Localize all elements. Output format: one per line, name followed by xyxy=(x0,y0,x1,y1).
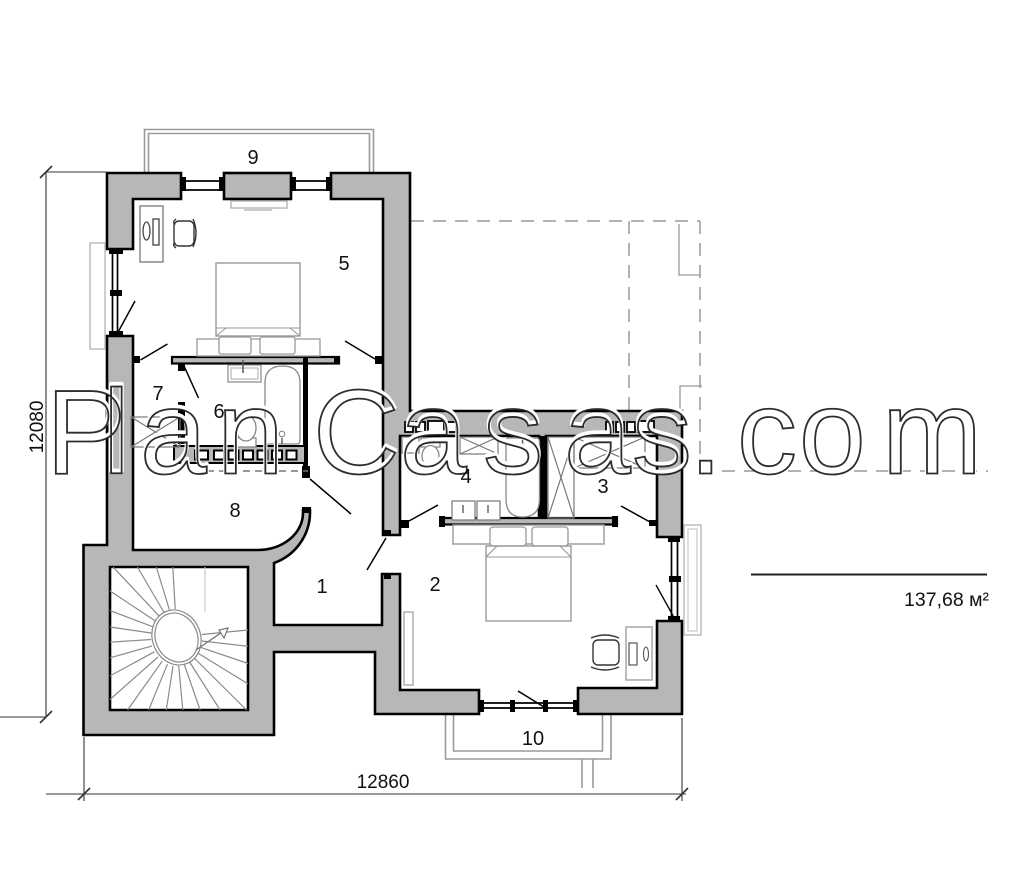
svg-text:1: 1 xyxy=(316,576,327,598)
svg-text:9: 9 xyxy=(247,147,258,169)
svg-text:2: 2 xyxy=(429,574,440,596)
svg-text:10: 10 xyxy=(522,728,544,750)
svg-text:8: 8 xyxy=(229,500,240,522)
svg-text:3: 3 xyxy=(597,476,608,498)
svg-text:6: 6 xyxy=(213,401,224,423)
svg-text:5: 5 xyxy=(338,253,349,275)
svg-text:7: 7 xyxy=(152,383,163,405)
svg-text:PlanCasas.com: PlanCasas.com xyxy=(46,366,982,500)
svg-text:12080: 12080 xyxy=(27,401,48,454)
svg-text:4: 4 xyxy=(460,466,471,488)
svg-text:12860: 12860 xyxy=(357,772,410,793)
svg-text:137,68 м²: 137,68 м² xyxy=(904,589,989,611)
